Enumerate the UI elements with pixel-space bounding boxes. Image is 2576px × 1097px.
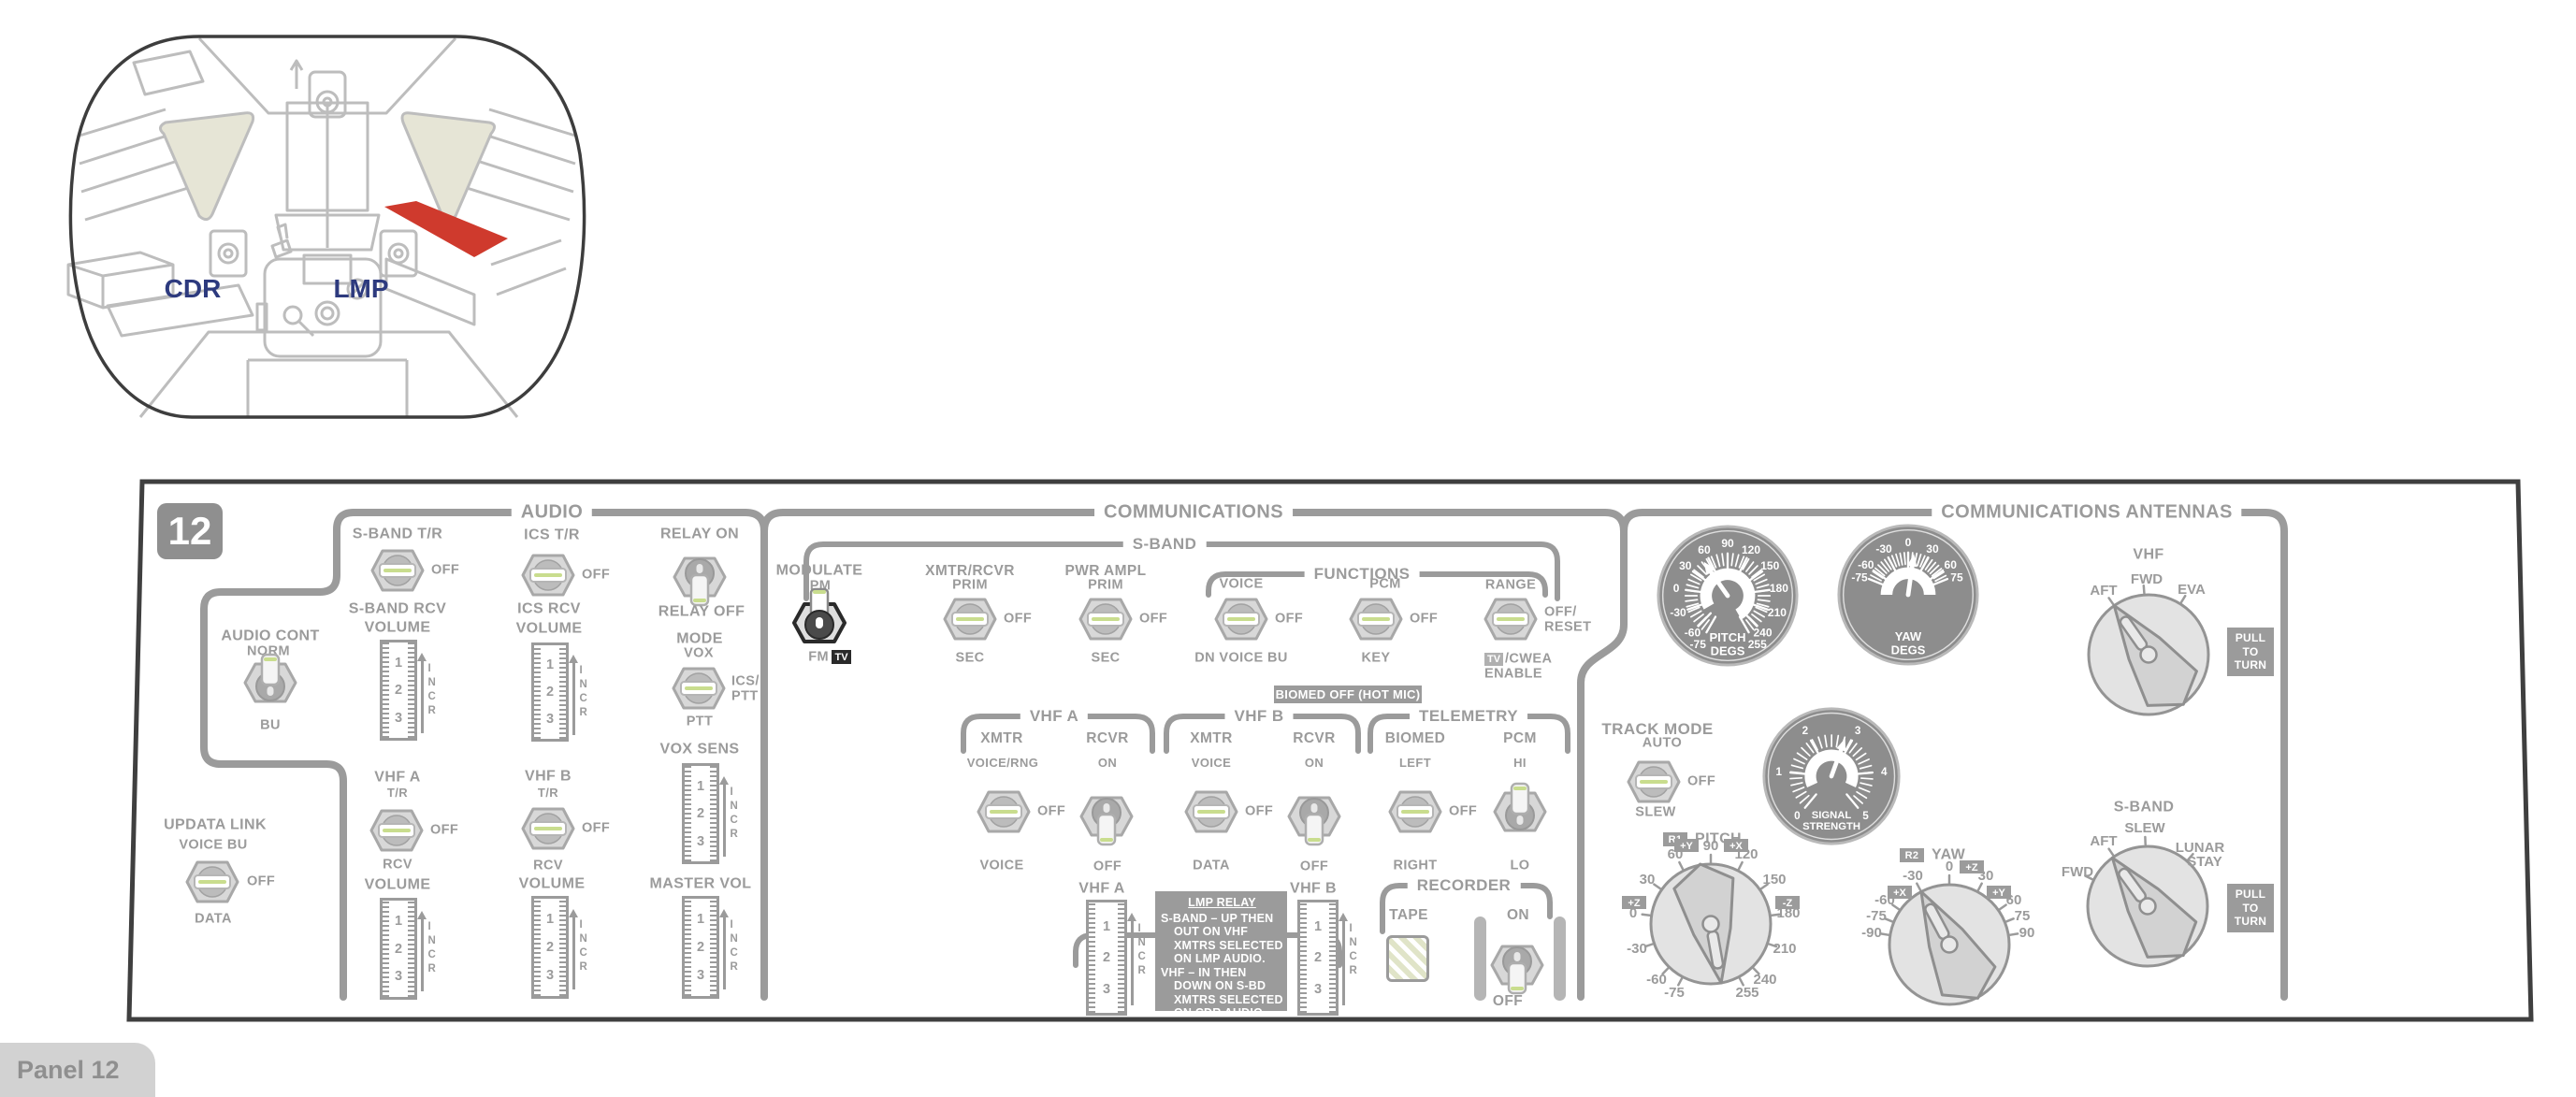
xmtr-rcvr-sec-label: SEC (955, 651, 984, 665)
recorder-tape-label: TAPE (1389, 908, 1428, 923)
r1-scale-n30: -30 (1627, 941, 1647, 957)
track-auto-label: AUTO (1643, 736, 1682, 750)
recorder-toggle[interactable] (1487, 928, 1547, 1003)
modulate-fm-label: FM (808, 650, 829, 664)
vox-sens-slider[interactable]: 123 (682, 763, 719, 864)
recorder-guard-left (1474, 917, 1486, 1001)
pwr-ampl-switch[interactable] (1076, 593, 1136, 645)
vhfa-tr-label: VHF A (374, 771, 420, 787)
func-pcm-key-label: KEY (1361, 651, 1390, 665)
range-reset-label: RESET (1544, 620, 1591, 634)
signal-strength-gauge: 0 1 2 3 4 5 SIGNAL STRENGTH (1761, 706, 1902, 846)
r1-scale-210: 210 (1773, 941, 1796, 957)
vhfb-xmtr-off-label: OFF (1245, 804, 1273, 818)
panel-12-diagram: CDR LMP 12 Panel 12 AUDIO COMMUNICATIONS… (0, 0, 2576, 1097)
r1-scale-150: 150 (1762, 872, 1786, 888)
mode-ics-label: ICS/ (731, 674, 760, 688)
biomed-switch[interactable] (1385, 786, 1445, 838)
mode-vox-label: VOX (684, 646, 714, 660)
pitch-scale-n30: -30 (1670, 606, 1686, 619)
signal-scale-4: 4 (1881, 766, 1888, 778)
r1-scale-n75: -75 (1664, 985, 1685, 1001)
mode-switch[interactable] (669, 662, 729, 714)
r1-scale-30: 30 (1640, 872, 1656, 888)
r2-yaw-knob[interactable]: 0 30 -30 60 -60 75 -75 90 -90 +X +Z +Y (1856, 851, 2043, 1038)
yaw-scale-n75: -75 (1851, 571, 1868, 585)
mode-ptt-right-label: PTT (731, 689, 759, 703)
yaw-gauge-name2: DEGS (1891, 643, 1926, 657)
r1-axis-pz: +Z (1628, 898, 1640, 909)
range-label: RANGE (1485, 578, 1536, 592)
vox-sens-incr: INCR (723, 771, 741, 857)
recorder-group-title: RECORDER (1408, 877, 1521, 894)
sband-knob-fwd: FWD (2062, 864, 2093, 880)
func-pcm-label: PCM (1369, 577, 1400, 591)
functions-group-title: FUNCTIONS (1305, 566, 1420, 583)
signal-scale-3: 3 (1855, 725, 1861, 737)
range-off-label: OFF/ (1544, 605, 1577, 619)
vhfb-rcvr-on-label: ON (1305, 757, 1324, 770)
squelch-vhfb-label: VHF B (1290, 882, 1337, 898)
audio-cont-toggle[interactable] (240, 645, 300, 720)
signal-gauge-name2: STRENGTH (1802, 821, 1860, 832)
ics-volume-slider[interactable]: 123 (531, 642, 569, 742)
r1-pitch-knob[interactable]: 90 60 120 30 150 0 180 -30 210 -60 240 -… (1617, 830, 1804, 1018)
panel-caption-tab: Panel 12 (0, 1043, 155, 1097)
yaw-scale-n30: -30 (1875, 542, 1892, 556)
r2-axis-px: +X (1893, 888, 1906, 899)
signal-scale-0: 0 (1794, 810, 1801, 822)
ics-tr-switch[interactable] (518, 549, 578, 601)
pitch-scale-n75: -75 (1690, 638, 1707, 651)
range-tv-badge: TV (1484, 653, 1503, 666)
func-voice-off-label: OFF (1275, 612, 1303, 626)
vhf-knob-eva: EVA (2178, 582, 2206, 598)
modulate-label: MODULATE (776, 564, 863, 580)
yaw-scale-60: 60 (1945, 558, 1958, 571)
vhf-pull-to-turn-badge: PULL TO TURN (2227, 628, 2274, 676)
telemetry-pcm-hi-label: HI (1513, 757, 1527, 770)
xmtr-rcvr-off-label: OFF (1004, 612, 1032, 626)
xmtr-rcvr-prim-label: PRIM (952, 578, 988, 592)
vhf-knob-aft: AFT (2090, 583, 2117, 599)
track-mode-switch[interactable] (1624, 756, 1684, 808)
range-switch[interactable] (1481, 593, 1541, 645)
r2-axis-py: +Y (1992, 888, 2005, 899)
pitch-scale-90: 90 (1721, 537, 1734, 550)
sband-tr-switch[interactable] (368, 544, 427, 597)
pitch-gauge-name2: DEGS (1711, 644, 1745, 658)
relay-off-label: RELAY OFF (658, 605, 745, 621)
pitch-scale-150: 150 (1760, 559, 1779, 572)
vhf-knob-fwd: FWD (2131, 571, 2163, 587)
updata-off-label: OFF (247, 874, 275, 888)
vhfb-volume-label: VOLUME (519, 877, 586, 893)
updata-voice-bu-label: VOICE BU (179, 838, 247, 852)
pitch-scale-180: 180 (1770, 582, 1788, 595)
vhfb-xmtr-sub-label: VOICE (1192, 757, 1231, 770)
recorder-off-label: OFF (1493, 994, 1523, 1009)
pitch-scale-120: 120 (1742, 543, 1760, 556)
pitch-gauge-name1: PITCH (1710, 630, 1746, 644)
vhfa-rcvr-on-label: ON (1098, 757, 1117, 770)
vhfa-xmtr-off-label: OFF (1037, 804, 1065, 818)
recorder-guard-right (1554, 917, 1566, 1001)
ics-tr-label: ICS T/R (524, 528, 580, 544)
pitch-scale-255: 255 (1748, 638, 1767, 651)
telemetry-pcm-label: PCM (1503, 731, 1537, 746)
squelch-vhfa-incr: INCR (1131, 907, 1149, 1005)
range-enable-label: ENABLE (1484, 667, 1542, 681)
mode-ptt-label: PTT (687, 714, 714, 729)
telemetry-group-title: TELEMETRY (1410, 708, 1527, 725)
sband-rcv-label: S-BAND RCV (349, 602, 446, 618)
pitch-scale-60: 60 (1698, 543, 1711, 556)
sband-knob-aft: AFT (2090, 833, 2117, 849)
r2-axis-pz: +Z (1965, 862, 1977, 873)
vhfb-rcvr-label: RCVR (1293, 731, 1336, 746)
yaw-degs-gauge: 0 30 60 75 -30 -60 -75 YAW DEGS (1836, 523, 1980, 667)
vhfb-xmtr-data-label: DATA (1193, 859, 1230, 873)
pwr-ampl-sec-label: SEC (1091, 651, 1120, 665)
sband-knob-stay: STAY (2187, 854, 2222, 870)
master-vol-label: MASTER VOL (650, 877, 752, 893)
signal-scale-1: 1 (1775, 766, 1782, 778)
vhfa-volume-incr: INCR (421, 905, 439, 991)
r1-axis-nz: -Z (1783, 898, 1793, 909)
sband-group-title: S-BAND (1123, 536, 1207, 553)
ics-rcv-label: ICS RCV (517, 602, 581, 618)
vhf-antenna-knob[interactable]: AFT FWD EVA (2055, 561, 2242, 748)
sband-volume-label: VOLUME (365, 621, 431, 637)
vhfb-tr-switch[interactable] (518, 802, 578, 855)
modulate-tv-badge: TV (832, 650, 851, 664)
r1-scale-255: 255 (1735, 985, 1758, 1001)
yaw-scale-75: 75 (1950, 571, 1963, 585)
r2-scale-90: 90 (2019, 925, 2035, 941)
pitch-scale-30: 30 (1679, 559, 1692, 572)
vhfa-rcvr-label: RCVR (1086, 731, 1129, 746)
squelch-vhfb-slider[interactable]: 123 (1297, 900, 1339, 1016)
squelch-vhfa-slider[interactable]: 123 (1086, 900, 1127, 1016)
biomed-left-label: LEFT (1399, 757, 1431, 770)
r1-axis-py: +Y (1680, 841, 1693, 852)
audio-section-title: AUDIO (512, 503, 592, 523)
lmp-relay-note: LMP RELAY S-BAND – UP THEN OUT ON VHF XM… (1155, 891, 1287, 1011)
func-pcm-switch[interactable] (1346, 593, 1406, 645)
signal-scale-2: 2 (1802, 725, 1809, 737)
biomed-right-label: RIGHT (1393, 859, 1437, 873)
vhfa-group-title: VHF A (1020, 708, 1088, 725)
vhfb-rcvr-toggle[interactable] (1284, 779, 1344, 854)
vhfa-rcvr-off-label: OFF (1093, 859, 1122, 873)
sband-volume-slider[interactable]: 123 (380, 640, 417, 741)
sband-knob-slew: SLEW (2124, 820, 2165, 836)
updata-link-switch[interactable] (182, 856, 242, 908)
modulate-switch[interactable] (789, 582, 849, 657)
vhfb-rcv-label: RCV (533, 859, 563, 873)
sband-tr-label: S-BAND T/R (353, 527, 442, 543)
audio-cont-label: AUDIO CONT (221, 629, 319, 645)
vhfb-volume-slider[interactable]: 123 (531, 896, 569, 999)
r2-scale-0: 0 (1946, 859, 1953, 874)
squelch-vhfb-incr: INCR (1342, 907, 1360, 1005)
vhfa-xmtr-sub-label: VOICE/RNG (967, 757, 1039, 770)
vhfa-volume-slider[interactable]: 123 (380, 898, 417, 1000)
track-slew-label: SLEW (1635, 805, 1676, 819)
yaw-scale-30: 30 (1926, 542, 1939, 556)
vhfb-rcvr-off-label: OFF (1300, 859, 1328, 873)
vhfb-xmtr-switch[interactable] (1181, 786, 1241, 838)
pwr-ampl-off-label: OFF (1139, 612, 1167, 626)
yaw-scale-0: 0 (1905, 536, 1912, 549)
ics-volume-incr: INCR (572, 649, 590, 735)
xmtr-rcvr-switch[interactable] (940, 593, 1000, 645)
pitch-degs-gauge: 90 120 150 180 210 240 255 60 30 0 -30 -… (1656, 524, 1800, 668)
master-vol-incr: INCR (723, 903, 741, 989)
biomed-off-hot-mic-badge: BIOMED OFF (HOT MIC) (1274, 686, 1422, 703)
func-voice-switch[interactable] (1211, 593, 1271, 645)
pitch-scale-210: 210 (1768, 606, 1787, 619)
vhfb-group-title: VHF B (1225, 708, 1294, 725)
r2-scale-75: 75 (2015, 908, 2031, 924)
biomed-label: BIOMED (1385, 731, 1445, 746)
vhfb-tr-sub-label: T/R (538, 787, 558, 800)
vhfa-xmtr-switch[interactable] (974, 786, 1034, 838)
vhfa-xmtr-voice-label: VOICE (979, 859, 1023, 873)
r2-scale-n30: -30 (1903, 868, 1923, 884)
recorder-tape-indicator (1386, 935, 1429, 982)
vhfa-xmtr-label: XMTR (980, 731, 1023, 746)
updata-link-label: UPDATA LINK (164, 818, 267, 834)
r2-scale-n75: -75 (1866, 908, 1887, 924)
range-cwea-label: /CWEA (1505, 652, 1552, 666)
sband-antenna-knob[interactable]: FWD AFT SLEW LUNAR STAY (2054, 813, 2241, 1000)
pitch-scale-0: 0 (1673, 582, 1680, 595)
vhfa-tr-switch[interactable] (367, 804, 427, 857)
signal-scale-5: 5 (1862, 810, 1869, 822)
master-vol-slider[interactable]: 123 (682, 896, 719, 999)
recorder-on-label: ON (1507, 908, 1529, 923)
func-pcm-off-label: OFF (1410, 612, 1438, 626)
panel-number-badge: 12 (157, 503, 223, 559)
sband-pull-to-turn-badge: PULL TO TURN (2227, 884, 2274, 932)
vhfa-rcv-label: RCV (383, 858, 412, 872)
telemetry-pcm-toggle[interactable] (1490, 774, 1550, 849)
telemetry-pcm-lo-label: LO (1511, 859, 1530, 873)
vhfb-tr-off-label: OFF (582, 821, 610, 835)
vox-sens-label: VOX SENS (659, 743, 739, 758)
communications-section-title: COMMUNICATIONS (1094, 503, 1293, 523)
antennas-section-title: COMMUNICATIONS ANTENNAS (1932, 503, 2241, 523)
updata-data-label: DATA (195, 912, 232, 926)
ics-volume-label: VOLUME (516, 622, 583, 638)
r2-scale-n90: -90 (1861, 925, 1882, 941)
vhfa-rcvr-toggle[interactable] (1077, 779, 1136, 854)
vhfa-tr-off-label: OFF (430, 823, 458, 837)
yaw-gauge-name1: YAW (1895, 629, 1922, 643)
r1-axis-px: +X (1729, 841, 1743, 852)
sband-tr-off-label: OFF (431, 563, 459, 577)
yaw-scale-n60: -60 (1858, 558, 1874, 571)
vhfb-xmtr-label: XMTR (1190, 731, 1233, 746)
biomed-off-label: OFF (1449, 804, 1477, 818)
ics-tr-off-label: OFF (582, 568, 610, 582)
sband-volume-incr: INCR (421, 647, 439, 733)
track-off-label: OFF (1687, 774, 1715, 788)
vhfb-tr-label: VHF B (525, 770, 572, 786)
vhfa-tr-sub-label: T/R (387, 787, 408, 800)
pwr-ampl-prim-label: PRIM (1088, 578, 1123, 592)
signal-gauge-name1: SIGNAL (1812, 810, 1852, 821)
dn-voice-bu-label: DN VOICE BU (1194, 651, 1287, 665)
vhfb-volume-incr: INCR (572, 903, 590, 989)
vhfa-volume-label: VOLUME (365, 878, 431, 894)
squelch-vhfa-label: VHF A (1078, 882, 1124, 898)
audio-cont-bu-label: BU (260, 718, 281, 732)
func-voice-label: VOICE (1219, 577, 1263, 591)
r1-scale-90: 90 (1703, 838, 1719, 854)
